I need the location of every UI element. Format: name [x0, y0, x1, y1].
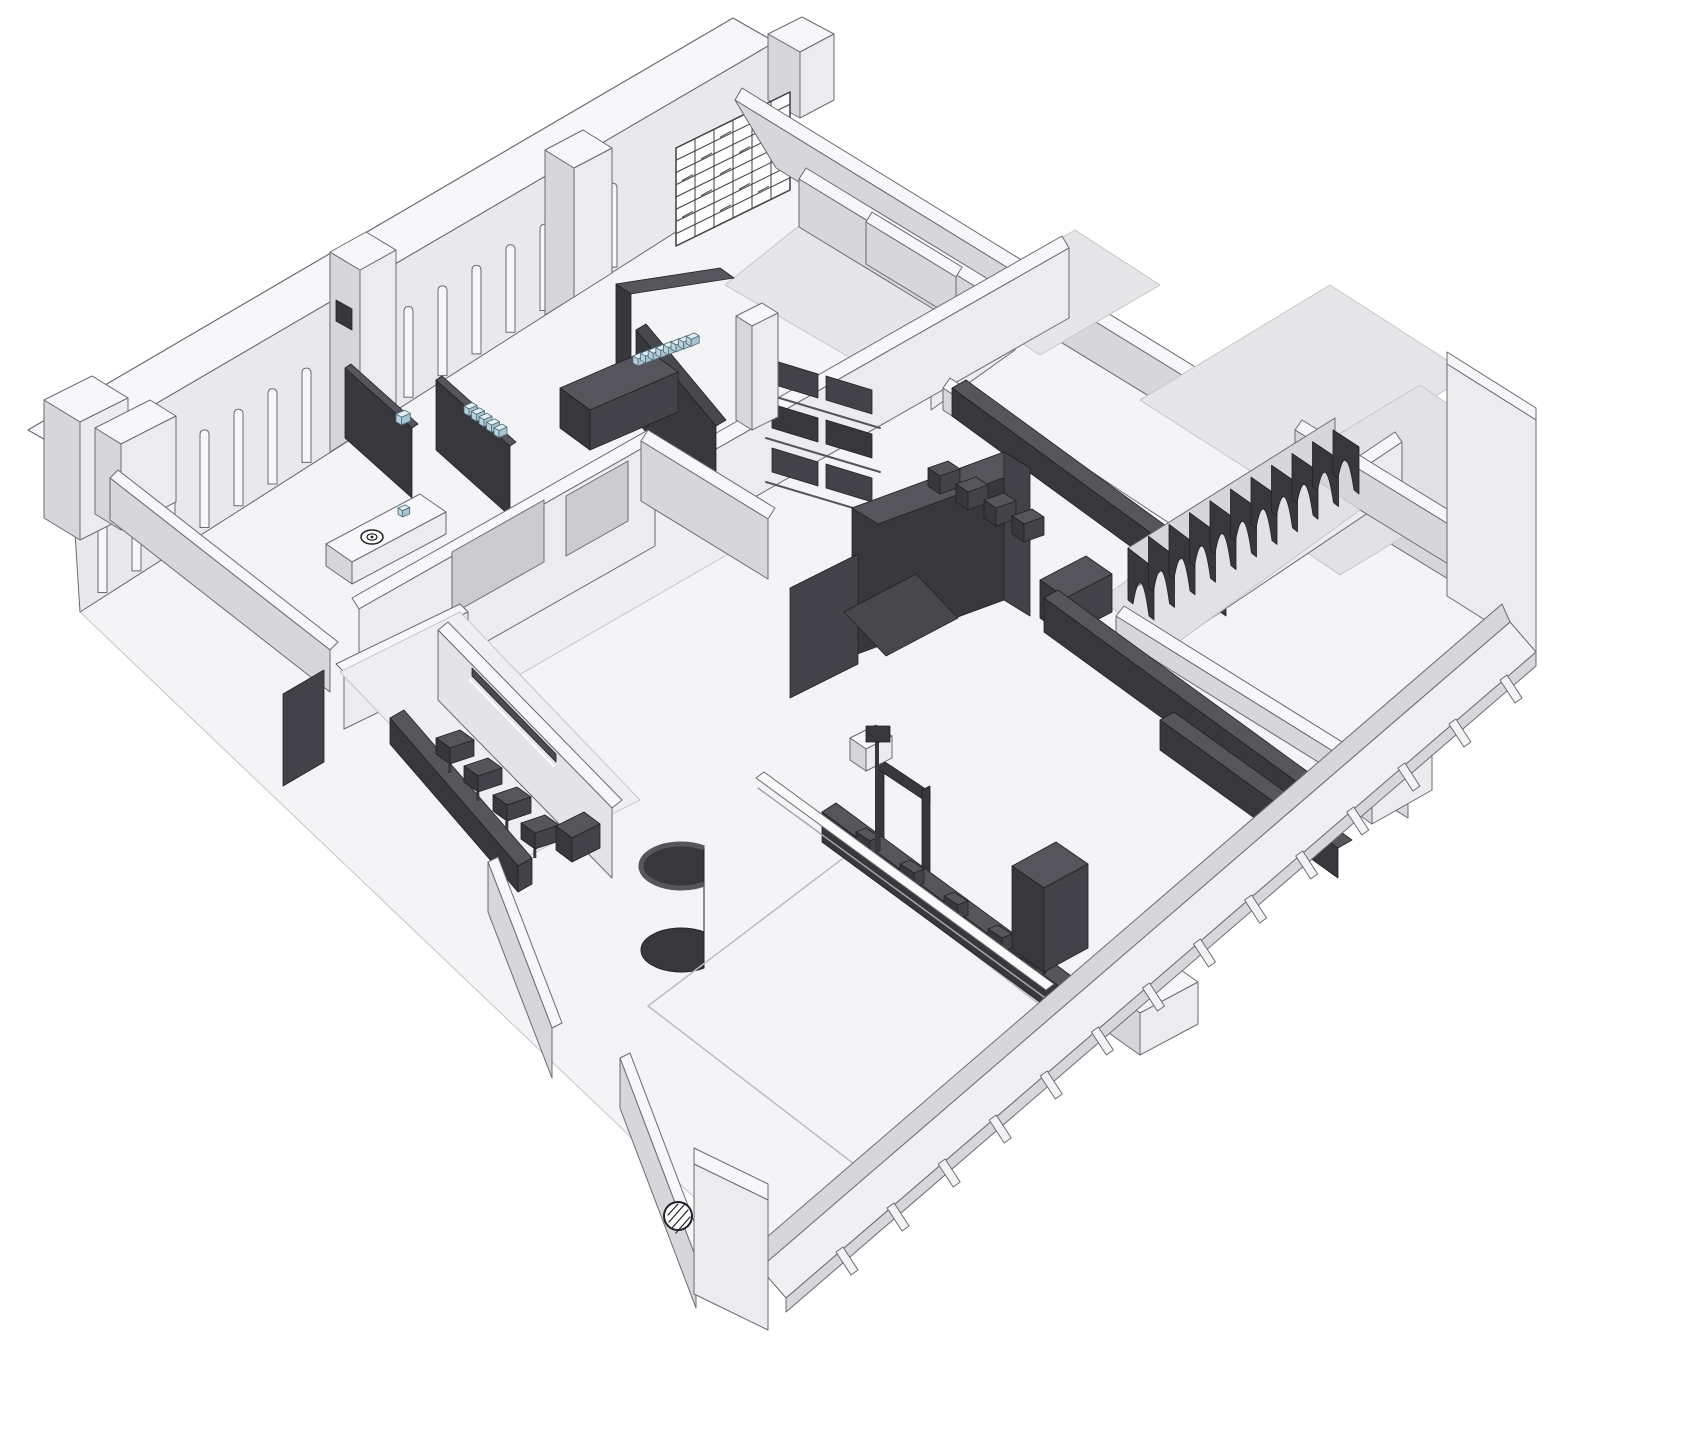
floor-lamp-head [866, 726, 890, 742]
entry-block-1-sw [44, 400, 80, 540]
center-pillar-se [752, 313, 778, 430]
wall-slot-7 [302, 368, 311, 462]
floor-plan-3d-rendering [0, 0, 1700, 1436]
wall-slot-13 [506, 245, 515, 332]
wall-slot-6 [268, 389, 277, 484]
axonometric-model-viewport [0, 0, 1700, 1436]
wall-slot-5 [234, 409, 243, 505]
wall-slot-12 [472, 265, 481, 354]
wall-slot-11 [438, 286, 447, 376]
wall-slot-4 [200, 430, 209, 528]
wall-slot-10 [404, 306, 413, 397]
wall-pillar-2-se [574, 148, 612, 297]
wall-pillar-2-sw [545, 150, 574, 315]
turntable-center-dot [371, 536, 374, 539]
hatched-knob [664, 1202, 692, 1230]
center-pillar-sw [736, 316, 752, 430]
